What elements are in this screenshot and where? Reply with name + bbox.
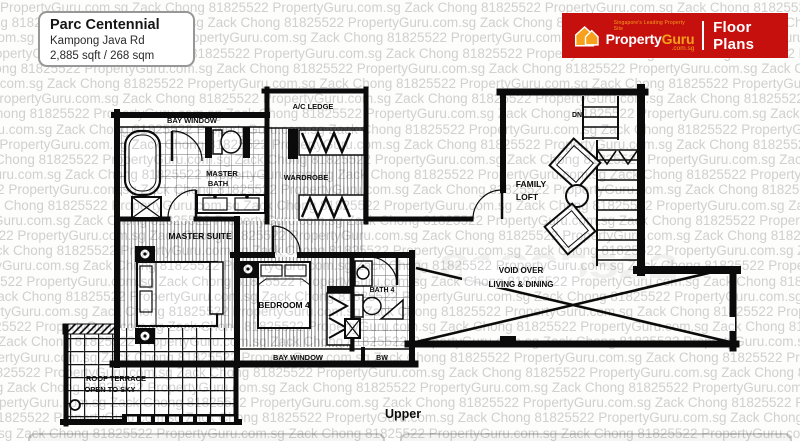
label-roof-terrace-2: OPEN TO SKY xyxy=(84,385,135,394)
toilet-bowl xyxy=(221,131,241,153)
listing-info-card: Parc Centennial Kampong Java Rd 2,885 sq… xyxy=(38,11,195,67)
banner-divider xyxy=(702,21,704,50)
pillow xyxy=(285,265,306,276)
label-bay-window-top: BAY WINDOW xyxy=(167,116,218,125)
floor-plan-page: Zack Chong 81825522 xyxy=(0,0,800,441)
vanity-sink xyxy=(235,198,259,210)
project-name: Parc Centennial xyxy=(50,16,183,34)
label-master-suite: MASTER SUITE xyxy=(168,231,232,241)
label-master-bath-1: MASTER xyxy=(206,169,238,178)
banner-section-title: Floor Plans xyxy=(713,19,788,53)
bed-bench xyxy=(210,262,223,314)
propertyguru-logo: Singapore's Leading Property Site Proper… xyxy=(606,20,695,52)
label-bedroom4: BEDROOM 4 xyxy=(258,300,310,310)
label-bath4: BATH 4 xyxy=(370,287,395,294)
propertyguru-banner: Singapore's Leading Property Site Proper… xyxy=(562,13,788,58)
toilet-wall-stub xyxy=(205,127,212,158)
label-bay-window-bottom: BAY WINDOW xyxy=(273,353,324,362)
roof-terrace-edge-hatch xyxy=(63,324,117,334)
label-dn: DN xyxy=(572,112,582,119)
void-wall-notch xyxy=(726,317,735,331)
label-family-loft-2: LOFT xyxy=(516,192,539,202)
project-area: 2,885 sqft / 268 sqm xyxy=(50,49,183,64)
label-wardrobe: WARDROBE xyxy=(284,173,329,182)
label-void-1: VOID OVER xyxy=(499,266,544,275)
label-family-loft-1: FAMILY xyxy=(516,179,547,189)
propertyguru-house-icon xyxy=(573,22,601,49)
toilet-tank xyxy=(354,295,363,317)
terrace-drain xyxy=(70,400,80,410)
pillow xyxy=(261,265,282,276)
toilet-bowl xyxy=(363,298,381,315)
pillow xyxy=(140,291,152,312)
label-bw: BW xyxy=(376,355,388,362)
pillow xyxy=(140,266,152,287)
toilet-wall-stub xyxy=(243,127,250,158)
label-ac-ledge: A/C LEDGE xyxy=(293,102,334,111)
label-master-bath-2: BATH xyxy=(208,179,228,188)
brand-name-property: Property xyxy=(606,31,662,47)
family-loft-furniture xyxy=(545,139,601,255)
loft-table xyxy=(566,185,588,207)
brand-domain-suffix: .com.sg xyxy=(672,46,695,52)
void-bottom-bump xyxy=(500,336,516,344)
label-level: Upper xyxy=(385,407,421,421)
label-roof-terrace-1: ROOF TERRACE xyxy=(86,374,146,383)
stair-direction-arrow xyxy=(598,151,637,164)
label-void-2: LIVING & DINING xyxy=(489,280,554,289)
wardrobe-cap xyxy=(327,286,351,293)
project-address: Kampong Java Rd xyxy=(50,34,183,49)
staircase xyxy=(583,96,637,266)
vanity-sink xyxy=(203,198,227,210)
